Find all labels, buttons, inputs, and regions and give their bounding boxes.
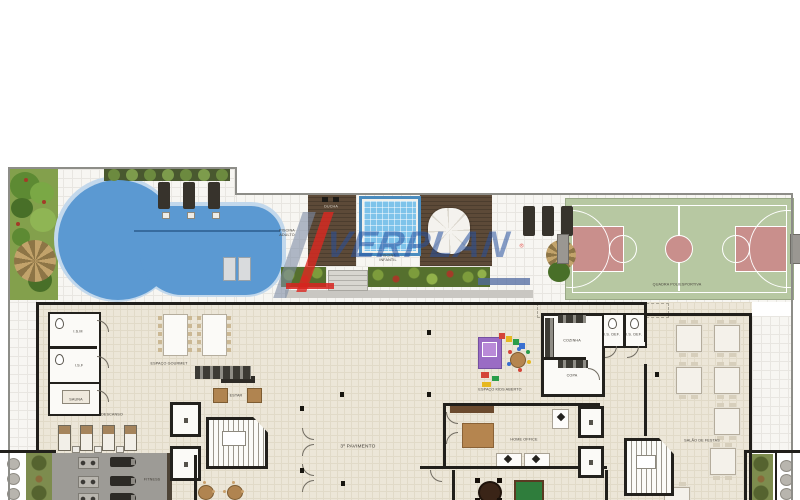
toilet xyxy=(630,318,639,329)
right-terrace xyxy=(752,316,792,450)
wall xyxy=(644,316,647,342)
stair-landing xyxy=(636,455,656,469)
rest-lounger xyxy=(124,425,137,451)
armchair xyxy=(213,388,228,403)
wall xyxy=(744,450,747,500)
label-cozinha: COZINHA xyxy=(563,339,581,343)
column xyxy=(300,406,304,411)
logo-underline-red xyxy=(286,283,334,289)
gourmet-table xyxy=(163,314,188,356)
gourmet-kitchen-counter xyxy=(195,366,251,379)
watermark-brand: VERPLAN xyxy=(323,224,513,266)
label-home-office: HOME OFFICE xyxy=(510,438,537,442)
planter-strip xyxy=(26,453,52,500)
kids-chairs xyxy=(508,350,512,354)
pool-float-lounger xyxy=(238,257,251,281)
chairs xyxy=(227,316,231,352)
treadmill xyxy=(110,457,136,467)
copa-counter xyxy=(558,360,588,368)
basketball-hoop-left xyxy=(557,234,569,264)
wall xyxy=(443,403,600,406)
party-table xyxy=(714,408,740,435)
label-fitness: FITNESS xyxy=(144,478,161,482)
wall xyxy=(775,453,777,500)
flower xyxy=(16,222,20,226)
pool-lane-line xyxy=(134,230,280,232)
site-boundary-top-right xyxy=(235,193,793,195)
planter-strip xyxy=(749,454,773,500)
label-isf: I.S.F xyxy=(75,364,83,368)
label-sauna: SAUNA xyxy=(69,398,82,402)
tree xyxy=(216,169,228,181)
wall xyxy=(36,302,39,452)
label-estar: ESTAR xyxy=(230,394,243,398)
court-ft-circle-right xyxy=(722,235,750,263)
site-boundary-top-left xyxy=(8,167,237,169)
side-table xyxy=(162,212,170,219)
column xyxy=(300,468,304,473)
play-toy xyxy=(492,376,499,381)
chairs xyxy=(197,316,201,352)
toilet xyxy=(55,354,64,365)
label-piscina-adulto: PISCINA ADULTO xyxy=(279,229,295,237)
billiards-table xyxy=(514,480,544,500)
wall xyxy=(644,313,752,316)
site-boundary-right xyxy=(791,193,793,500)
chairs xyxy=(188,316,192,352)
play-toy xyxy=(482,382,491,387)
bush xyxy=(30,208,56,232)
label-gourmet: ESPAÇO GOURMET xyxy=(150,362,187,366)
wall xyxy=(48,346,97,349)
deck-steps xyxy=(328,270,368,291)
side-table xyxy=(187,212,195,219)
conference-table xyxy=(462,423,494,448)
wall xyxy=(0,450,56,453)
poker-chairs xyxy=(475,478,480,483)
party-table xyxy=(714,325,740,352)
tree xyxy=(144,169,156,181)
label-ism: I.S.M xyxy=(73,330,82,334)
play-block xyxy=(519,343,525,349)
play-block xyxy=(499,333,505,339)
label-isdef-1: I.S. DEF. xyxy=(604,333,620,337)
wall xyxy=(452,470,455,500)
label-isdef-2: I.S. DEF. xyxy=(626,333,642,337)
elevator xyxy=(170,402,201,437)
column xyxy=(655,372,659,377)
wall xyxy=(749,313,752,500)
tree xyxy=(126,169,138,181)
sun-lounger xyxy=(183,182,195,209)
rest-lounger xyxy=(102,425,115,451)
side-table xyxy=(116,446,124,453)
toilet xyxy=(608,318,617,329)
kitchen-counter xyxy=(558,315,586,323)
party-table xyxy=(676,325,702,352)
tree xyxy=(108,169,120,181)
poker-table xyxy=(478,481,502,500)
kids-table xyxy=(510,352,526,368)
treadmill xyxy=(110,493,136,500)
side-table xyxy=(94,446,102,453)
elevator xyxy=(578,446,604,478)
weight-machine xyxy=(78,493,99,500)
sun-lounger xyxy=(208,182,220,209)
pool-lower-lobe xyxy=(140,235,282,295)
toilet xyxy=(55,318,64,329)
sun-lounger xyxy=(523,206,535,236)
sun-lounger xyxy=(561,206,573,236)
rest-lounger xyxy=(80,425,93,451)
label-quadra: QUADRA POLIESPORTIVA xyxy=(653,283,702,287)
shower-fixture xyxy=(322,197,328,202)
logo-underline-blue xyxy=(478,278,530,285)
sun-lounger xyxy=(158,182,170,209)
weight-machine xyxy=(78,476,99,488)
side-walkway xyxy=(9,302,36,450)
tree xyxy=(162,169,174,181)
column xyxy=(427,392,431,397)
label-salao: SALÃO DE FESTAS xyxy=(684,439,720,443)
wall xyxy=(644,364,647,436)
wall xyxy=(744,450,800,453)
bush xyxy=(548,262,570,282)
fitness-floor xyxy=(48,453,168,500)
elevator xyxy=(578,406,604,438)
armchair xyxy=(247,388,262,403)
court-center-circle xyxy=(665,235,693,263)
label-kids: ESPAÇO KIDS ABERTO xyxy=(478,388,521,392)
shower-fixture xyxy=(333,197,339,202)
tree xyxy=(180,169,192,181)
flower xyxy=(24,178,28,182)
rest-lounger xyxy=(58,425,71,451)
label-ducha: DUCHA xyxy=(324,205,338,209)
party-table xyxy=(714,367,740,394)
column xyxy=(427,330,431,335)
wall xyxy=(36,302,646,305)
column xyxy=(341,481,345,486)
gourmet-table xyxy=(202,314,227,356)
wall xyxy=(605,470,608,500)
label-copa: COPA xyxy=(567,374,578,378)
playground-platform xyxy=(482,342,497,357)
play-toy xyxy=(481,372,489,378)
site-boundary-step xyxy=(235,167,237,195)
palm-tree xyxy=(14,240,56,282)
flower xyxy=(42,200,46,204)
treadmill xyxy=(110,476,136,486)
hedge xyxy=(368,267,490,287)
chairs xyxy=(158,316,162,352)
court-ft-circle-left xyxy=(609,235,637,263)
side-table xyxy=(72,446,80,453)
label-pavimento: 3º PAVIMENTO xyxy=(340,444,375,449)
column xyxy=(340,392,344,397)
wall xyxy=(194,455,197,500)
sun-lounger xyxy=(542,206,554,236)
watermark-registered-mark: ® xyxy=(520,244,524,250)
floor-plan-canvas: DUCHA PISCINA ADULTO PISCINA INFANTIL QU… xyxy=(0,0,800,500)
pool-float-lounger xyxy=(223,257,236,281)
bush xyxy=(11,198,33,218)
play-block xyxy=(506,336,512,342)
kitchen-counter xyxy=(545,318,554,358)
party-table xyxy=(710,448,736,475)
side-table xyxy=(212,212,220,219)
cafe-table xyxy=(227,485,243,500)
weight-machine xyxy=(78,457,99,469)
stair-landing xyxy=(222,431,246,446)
tree xyxy=(198,169,210,181)
label-descanso: DESCANSO xyxy=(101,413,123,417)
cafe-table xyxy=(198,485,214,500)
walkway xyxy=(285,290,533,298)
party-table xyxy=(676,367,702,394)
